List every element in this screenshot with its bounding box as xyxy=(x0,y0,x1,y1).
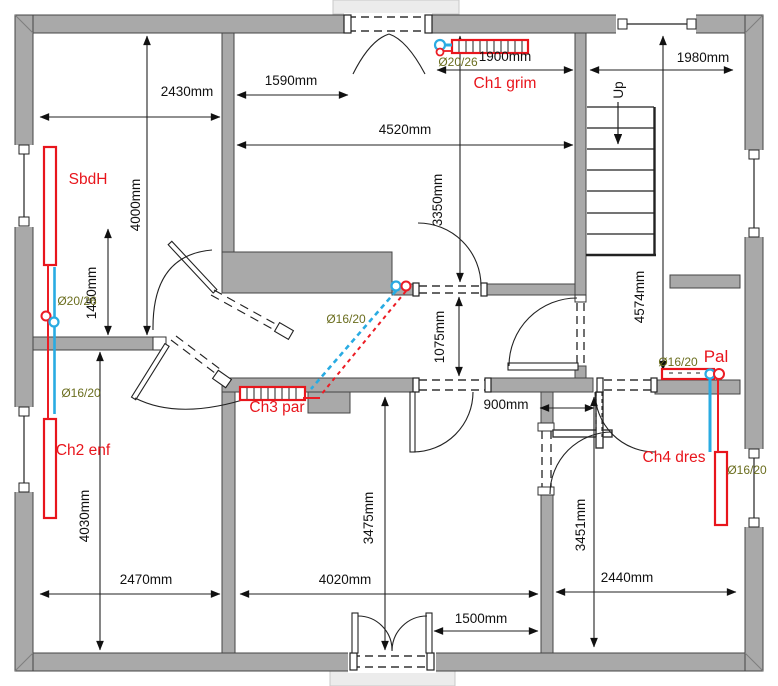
radiator-label-ch2: Ch2 enf xyxy=(38,441,128,461)
radiator-label-ch1: Ch1 grim xyxy=(460,74,550,94)
pipe-spec-ch4: Ø16/20 xyxy=(715,462,778,478)
dim-3451: 3451mm xyxy=(572,490,590,560)
stairs-up-label: Up xyxy=(610,70,628,110)
pipe-spec-sbdh: Ø20/26 xyxy=(45,293,109,309)
radiator-label-ch3: Ch3 par xyxy=(232,398,322,418)
dim-2440: 2440mm xyxy=(592,569,662,587)
dim-3475: 3475mm xyxy=(360,483,378,553)
dim-2470: 2470mm xyxy=(111,571,181,589)
dim-3350: 3350mm xyxy=(429,165,447,235)
floor-plan: 2430mm 1590mm 1900mm 1980mm 4520mm 3350m… xyxy=(0,0,778,686)
dim-2430: 2430mm xyxy=(152,83,222,101)
dim-900: 900mm xyxy=(471,396,541,414)
dim-1590: 1590mm xyxy=(256,72,326,90)
dim-4574: 4574mm xyxy=(631,262,649,332)
radiator-label-sbdh: SbdH xyxy=(43,170,133,190)
radiator-ch2 xyxy=(44,419,56,518)
dim-4030: 4030mm xyxy=(76,481,94,551)
pipe-spec-pal: Ø16/20 xyxy=(646,354,710,370)
pipe-spec-ch3: Ø16/20 xyxy=(314,311,378,327)
dim-1075: 1075mm xyxy=(431,302,449,372)
stairs xyxy=(586,102,656,256)
radiator-label-ch4: Ch4 dres xyxy=(629,448,719,468)
dim-4520: 4520mm xyxy=(370,121,440,139)
pipe-spec-ch2: Ø16/20 xyxy=(49,385,113,401)
dim-1980: 1980mm xyxy=(668,49,738,67)
dim-1500: 1500mm xyxy=(446,610,516,628)
pipe-spec-ch1: Ø20/26 xyxy=(426,54,490,70)
radiator-sbdh xyxy=(44,147,56,265)
dim-4020: 4020mm xyxy=(310,571,380,589)
